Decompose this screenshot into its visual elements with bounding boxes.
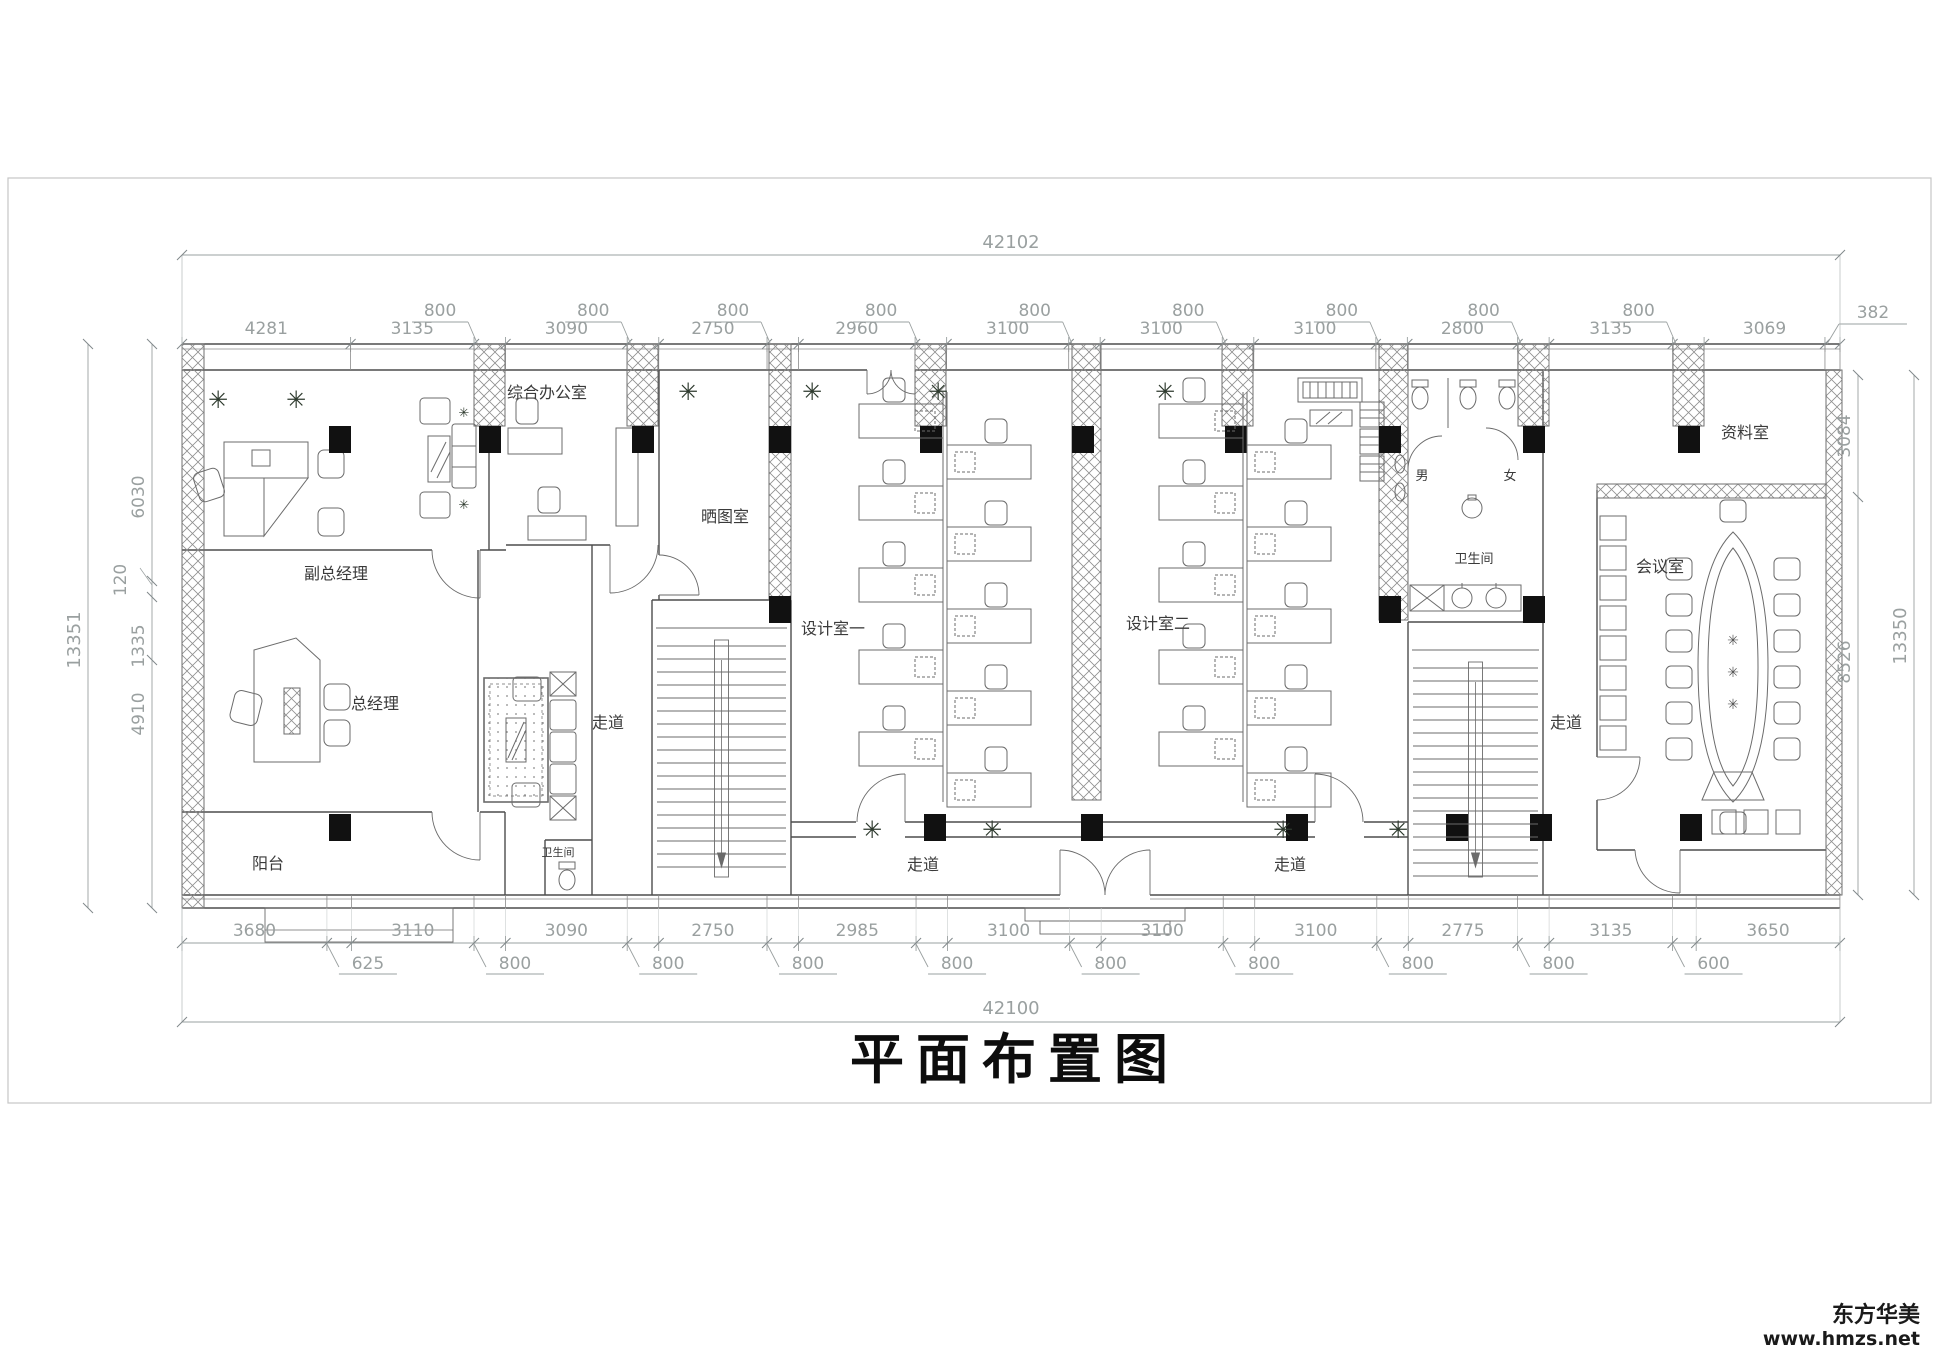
desk xyxy=(947,691,1031,725)
dim-line xyxy=(468,322,477,343)
dim-right-3084: 3084 xyxy=(1835,414,1855,457)
stair-arrow xyxy=(1472,853,1480,867)
column xyxy=(1678,426,1700,453)
drawing-title: 平面布置图 xyxy=(850,1027,1180,1091)
column xyxy=(1379,426,1401,453)
column xyxy=(1379,596,1401,623)
desk xyxy=(859,486,943,520)
wall-chair xyxy=(1600,696,1626,720)
dim-line xyxy=(627,944,639,967)
desk-return xyxy=(1215,575,1235,595)
plant-icon: ✳ xyxy=(1388,816,1408,844)
desk xyxy=(859,568,943,602)
dim-text: 800 xyxy=(1622,301,1654,321)
chair xyxy=(883,460,905,484)
plant-icon: ✳ xyxy=(459,406,470,421)
desk-return xyxy=(1255,616,1275,636)
chair xyxy=(883,706,905,730)
table-decor-icon: ✳ xyxy=(1727,697,1739,713)
stair-arrow xyxy=(718,853,726,867)
dim-left-4910: 4910 xyxy=(129,692,149,735)
dim-text: 800 xyxy=(1248,954,1280,974)
room-label-meeting: 会议室 xyxy=(1636,557,1684,576)
plant-icon: ✳ xyxy=(982,816,1002,844)
wall-chair xyxy=(1600,576,1626,600)
dim-text: 3110 xyxy=(391,921,434,941)
dim-right-8526: 8526 xyxy=(1835,640,1855,683)
desk xyxy=(947,609,1031,643)
dim-text: 800 xyxy=(1172,301,1204,321)
column xyxy=(329,426,351,453)
desk xyxy=(947,773,1031,807)
desk-return xyxy=(955,698,975,718)
table-decor-icon: ✳ xyxy=(1727,633,1739,649)
wall-chair xyxy=(1600,666,1626,690)
dim-text: 625 xyxy=(352,954,384,974)
chair xyxy=(1666,630,1692,652)
chair xyxy=(985,419,1007,443)
dim-text: 3069 xyxy=(1743,319,1786,339)
meeting-chairs xyxy=(1600,516,1800,760)
column xyxy=(1225,426,1247,453)
chair xyxy=(1285,665,1307,689)
desk-return xyxy=(955,452,975,472)
plant-icon: ✳ xyxy=(678,378,698,406)
dim-line xyxy=(761,322,770,343)
desk xyxy=(1159,568,1243,602)
desk xyxy=(1247,691,1331,725)
dim-text: 600 xyxy=(1697,954,1729,974)
chair xyxy=(883,624,905,648)
desk xyxy=(1247,773,1331,807)
dim-left-120: 120 xyxy=(111,564,131,596)
desk-return xyxy=(915,739,935,759)
chair xyxy=(1774,702,1800,724)
room-label-deputy-gm: 副总经理 xyxy=(304,564,368,583)
dim-line xyxy=(1370,322,1379,343)
dim-line xyxy=(909,322,918,343)
dim-text: 3100 xyxy=(1294,921,1337,941)
dim-text: 800 xyxy=(1094,954,1126,974)
column xyxy=(924,814,946,841)
column xyxy=(769,596,791,623)
desk-return xyxy=(1255,698,1275,718)
plant-icon: ✳ xyxy=(208,386,228,414)
dim-total-right: 13350 xyxy=(1890,607,1911,664)
dim-text: 2750 xyxy=(691,921,734,941)
dim-left-1335: 1335 xyxy=(129,624,149,667)
wall-chair xyxy=(1600,546,1626,570)
plant-icon: ✳ xyxy=(802,378,822,406)
chair xyxy=(1774,558,1800,580)
plant-icon: ✳ xyxy=(286,386,306,414)
desk xyxy=(1247,609,1331,643)
room-label-blueprint: 晒图室 xyxy=(701,507,749,526)
dim-text: 800 xyxy=(499,954,531,974)
dim-line xyxy=(474,944,486,967)
desk-return xyxy=(1255,534,1275,554)
room-labels: 副总经理 总经理 综合办公室 晒图室 设计室一 设计室二 资料室 会议室 卫生间… xyxy=(252,383,1769,874)
room-label-corridor-south2: 走道 xyxy=(1274,855,1306,874)
dim-text: 800 xyxy=(941,954,973,974)
chair xyxy=(1774,594,1800,616)
floor-plan-page: 4281313580030908002750800296080031008003… xyxy=(0,0,1939,1352)
room-label-general-office: 综合办公室 xyxy=(507,383,587,402)
dim-line xyxy=(1216,322,1225,343)
chair xyxy=(1183,706,1205,730)
desk xyxy=(1159,650,1243,684)
dim-line xyxy=(1667,322,1676,343)
dimension-chains: 4281313580030908002750800296080031008003… xyxy=(177,301,1907,974)
chair xyxy=(1285,583,1307,607)
dim-text: 800 xyxy=(1018,301,1050,321)
chair xyxy=(1666,666,1692,688)
watermark-brand: 东方华美 xyxy=(1832,1302,1921,1328)
room-label-female: 女 xyxy=(1503,468,1516,484)
watermark-url: www.hmzs.net xyxy=(1763,1328,1920,1350)
dim-text: 800 xyxy=(1542,954,1574,974)
chair xyxy=(1183,542,1205,566)
table-decor-icon: ✳ xyxy=(1727,665,1739,681)
dim-line xyxy=(1377,944,1389,967)
dim-line xyxy=(1827,324,1839,344)
desk xyxy=(859,650,943,684)
column xyxy=(1072,426,1094,453)
dim-text: 3100 xyxy=(1141,921,1184,941)
dim-line xyxy=(1063,322,1072,343)
dim-text: 3090 xyxy=(545,921,588,941)
column xyxy=(1081,814,1103,841)
dim-total-left: 13351 xyxy=(64,611,85,668)
chair xyxy=(1183,460,1205,484)
dim-line xyxy=(1518,944,1530,967)
chair xyxy=(1285,747,1307,771)
dim-text: 2985 xyxy=(836,921,879,941)
desk xyxy=(1159,732,1243,766)
dim-text: 800 xyxy=(1467,301,1499,321)
chair xyxy=(1285,419,1307,443)
dim-text: 4281 xyxy=(245,319,288,339)
dim-line xyxy=(1070,944,1082,967)
desk-return xyxy=(915,575,935,595)
room-label-corridor-south1: 走道 xyxy=(907,855,939,874)
wall-chair xyxy=(1600,516,1626,540)
column xyxy=(329,814,351,841)
dim-total-top: 42102 xyxy=(982,232,1039,253)
column xyxy=(632,426,654,453)
dim-text: 800 xyxy=(652,954,684,974)
wall-chair xyxy=(1600,726,1626,750)
wall-chair xyxy=(1600,636,1626,660)
plant-icon: ✳ xyxy=(862,816,882,844)
dim-text: 3680 xyxy=(233,921,276,941)
chair xyxy=(1666,738,1692,760)
desk-return xyxy=(1215,739,1235,759)
dim-line xyxy=(327,944,339,967)
dim-text: 800 xyxy=(792,954,824,974)
desk-return xyxy=(1255,452,1275,472)
desk-return xyxy=(955,534,975,554)
room-label-archive: 资料室 xyxy=(1721,423,1769,442)
desk xyxy=(947,445,1031,479)
desk-return xyxy=(915,657,935,677)
room-label-balcony: 阳台 xyxy=(252,854,284,873)
dim-line xyxy=(767,944,779,967)
desk xyxy=(1247,445,1331,479)
chair xyxy=(985,747,1007,771)
dim-text: 800 xyxy=(1402,954,1434,974)
chair xyxy=(1666,594,1692,616)
plant-icon: ✳ xyxy=(1155,378,1175,406)
room-label-design2: 设计室二 xyxy=(1126,614,1190,633)
column xyxy=(920,426,942,453)
dim-line xyxy=(916,944,928,967)
column xyxy=(479,426,501,453)
dim-text: 800 xyxy=(865,301,897,321)
chair xyxy=(985,665,1007,689)
desk-return xyxy=(1215,493,1235,513)
dim-text: 2775 xyxy=(1441,921,1484,941)
dim-left-6030: 6030 xyxy=(129,475,149,518)
room-label-restroom: 卫生间 xyxy=(1454,552,1493,567)
column xyxy=(769,426,791,453)
room-label-gm: 总经理 xyxy=(351,694,399,713)
hatched-walls xyxy=(182,344,1842,908)
desk-return xyxy=(915,493,935,513)
chair xyxy=(1285,501,1307,525)
room-label-corridor-west: 走道 xyxy=(592,713,624,732)
floor-plan-canvas: 4281313580030908002750800296080031008003… xyxy=(0,0,1939,1352)
furniture xyxy=(192,378,1800,942)
dim-text: 3100 xyxy=(987,921,1030,941)
desk xyxy=(1159,486,1243,520)
doors xyxy=(432,370,1680,895)
dim-line xyxy=(621,322,630,343)
chair xyxy=(985,501,1007,525)
chair xyxy=(985,583,1007,607)
walls xyxy=(182,344,1840,908)
room-label-male: 男 xyxy=(1415,469,1428,484)
desk xyxy=(1247,527,1331,561)
dim-line xyxy=(1512,322,1521,343)
chair xyxy=(1183,378,1205,402)
room-label-restroom-small: 卫生间 xyxy=(542,845,575,859)
dim-text: 800 xyxy=(424,301,456,321)
room-label-design1: 设计室一 xyxy=(801,619,865,638)
dim-text: 800 xyxy=(717,301,749,321)
dim-text: 3135 xyxy=(1589,921,1632,941)
column xyxy=(1680,814,1702,841)
dim-total-bottom: 42100 xyxy=(982,998,1039,1019)
chair xyxy=(1666,702,1692,724)
column xyxy=(1523,596,1545,623)
plant-icon: ✳ xyxy=(1273,816,1293,844)
desk-return xyxy=(955,780,975,800)
dim-text: 800 xyxy=(1326,301,1358,321)
chair xyxy=(883,542,905,566)
column xyxy=(1523,426,1545,453)
desk-return xyxy=(955,616,975,636)
desk xyxy=(859,732,943,766)
desk-return xyxy=(1215,657,1235,677)
wall-chair xyxy=(1600,606,1626,630)
dim-line xyxy=(1223,944,1235,967)
desk xyxy=(947,527,1031,561)
plant-icon: ✳ xyxy=(459,498,470,513)
chair xyxy=(1774,630,1800,652)
dim-text: 382 xyxy=(1857,303,1889,323)
chair xyxy=(1774,738,1800,760)
room-label-corridor-east: 走道 xyxy=(1550,713,1582,732)
dim-text: 800 xyxy=(577,301,609,321)
desk-return xyxy=(1255,780,1275,800)
plant-icon: ✳ xyxy=(928,378,948,406)
chair xyxy=(1774,666,1800,688)
dim-line xyxy=(1673,944,1685,967)
dim-text: 3650 xyxy=(1746,921,1789,941)
